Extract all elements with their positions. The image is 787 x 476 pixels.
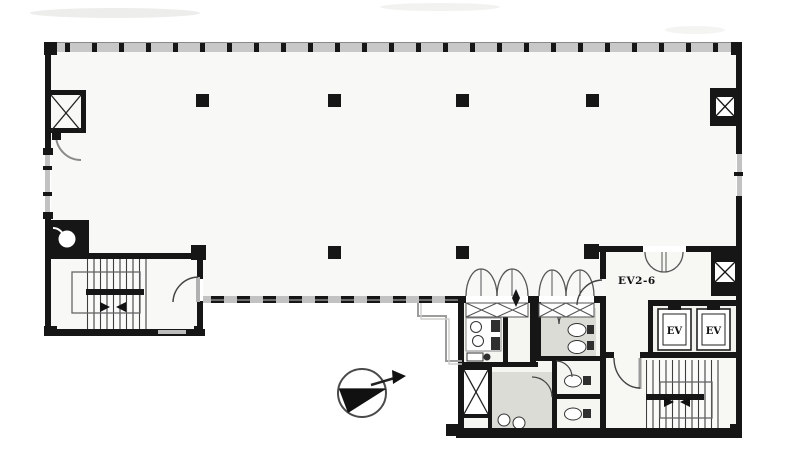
wall <box>640 352 742 358</box>
right-wall <box>736 196 742 252</box>
scan-noise <box>30 3 725 34</box>
door-leaf <box>196 277 200 302</box>
x-shaft-upper-right-icon <box>710 88 740 126</box>
x-shaft-ev-hall-icon <box>711 252 740 296</box>
north-arrow-icon <box>338 369 406 417</box>
x-braced-shaft-icon <box>462 368 490 416</box>
hose-reel-shaft-lower-left-icon <box>47 220 89 258</box>
wash-basin <box>498 414 510 426</box>
stair-landing-edge <box>86 289 144 295</box>
elevator-door <box>668 306 681 310</box>
exterior-step-line <box>418 303 462 364</box>
wash-basin <box>471 322 482 333</box>
corner-pad <box>44 326 57 336</box>
elevator-door <box>707 306 720 310</box>
mullion-tick <box>734 172 743 176</box>
corner-pad <box>730 424 742 438</box>
floor-plan-page: EV EV EV2-6 <box>0 0 787 476</box>
toilet-fixture <box>491 320 500 332</box>
left-wall <box>45 42 51 154</box>
urinal <box>467 353 483 361</box>
south-window-wall <box>203 296 462 303</box>
elevator-hall-label: EV2-6 <box>618 275 656 287</box>
elevator-car-left: EV <box>658 306 691 350</box>
column <box>456 94 469 107</box>
mullion-tick <box>43 166 52 170</box>
stair-window <box>158 330 186 334</box>
floor-drain <box>484 354 491 361</box>
corner-pad <box>446 424 462 436</box>
cistern <box>587 325 594 334</box>
corner-pad <box>194 326 203 336</box>
ev-hall-left-wall <box>600 246 606 279</box>
wall <box>606 352 614 358</box>
column <box>191 245 206 260</box>
toilet-bowl <box>565 375 582 387</box>
toilet-bowl <box>568 324 586 337</box>
column <box>328 246 341 259</box>
elevator-right-label: EV <box>706 326 722 337</box>
ev-hall-top-wall <box>686 246 742 252</box>
toilet-right-wall <box>600 303 606 438</box>
floor-plan-drawing: EV EV EV2-6 <box>0 0 787 476</box>
column <box>586 94 599 107</box>
cistern <box>583 376 591 385</box>
wash-basin <box>473 336 484 347</box>
toilet-fixture <box>491 337 500 350</box>
wall-stub <box>594 296 606 303</box>
top-curtain-wall <box>48 43 742 52</box>
left-window-band <box>45 154 50 216</box>
toilet-bowl <box>565 408 582 420</box>
wall-stub <box>528 296 539 303</box>
elevator-left-label: EV <box>667 326 683 337</box>
column <box>328 94 341 107</box>
toilet-bowl <box>568 341 586 354</box>
toilet-left-wall <box>458 296 464 438</box>
wall-stub <box>458 296 466 303</box>
wall <box>648 300 653 356</box>
bottom-wall <box>456 428 742 438</box>
wash-basin <box>513 417 525 429</box>
mullion-tick <box>43 192 52 196</box>
right-staircase <box>646 360 720 430</box>
column <box>456 246 469 259</box>
column <box>196 94 209 107</box>
stair-landing-edge <box>646 394 704 400</box>
wall <box>648 300 742 306</box>
column <box>584 244 599 259</box>
elevator-car-right: EV <box>697 306 730 350</box>
wall-end-pad <box>43 148 53 155</box>
cistern <box>587 341 594 350</box>
cistern <box>583 409 591 418</box>
